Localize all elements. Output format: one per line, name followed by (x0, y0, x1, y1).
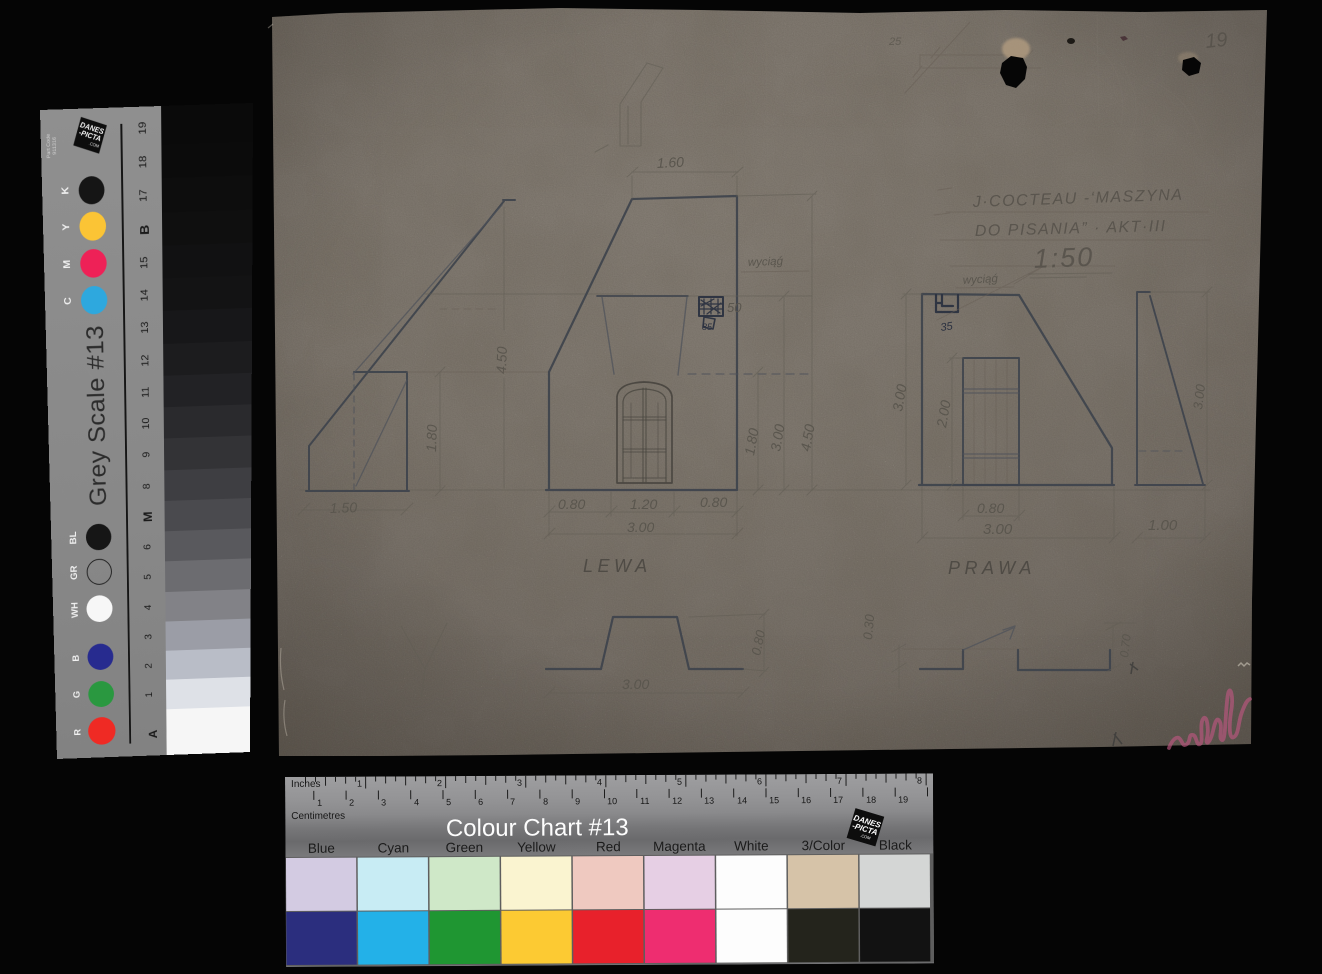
svg-text:3.00: 3.00 (983, 521, 1013, 538)
svg-text:4: 4 (414, 797, 419, 807)
svg-text:3: 3 (381, 797, 386, 807)
svg-text:4: 4 (597, 777, 602, 787)
svg-text:Cyan: Cyan (378, 840, 410, 855)
svg-text:19: 19 (898, 795, 908, 805)
svg-text:Colour Chart #13: Colour Chart #13 (446, 814, 629, 842)
svg-text:10: 10 (607, 796, 617, 806)
svg-text:5: 5 (446, 797, 451, 807)
svg-text:50: 50 (727, 300, 742, 315)
svg-text:wyciąǵ: wyciąǵ (748, 256, 784, 269)
svg-text:7: 7 (510, 797, 515, 807)
svg-text:1.00: 1.00 (1148, 517, 1178, 534)
svg-text:Centimetres: Centimetres (291, 811, 345, 822)
svg-text:White: White (734, 838, 769, 853)
svg-text:Inches: Inches (291, 779, 321, 790)
svg-text:1.50: 1.50 (330, 499, 358, 516)
svg-text:0.80: 0.80 (700, 494, 727, 510)
svg-text:Blue: Blue (308, 841, 335, 856)
svg-text:PRAWA: PRAWA (948, 558, 1036, 578)
svg-text:3.00: 3.00 (622, 676, 649, 692)
svg-text:8: 8 (543, 797, 548, 807)
svg-text:2: 2 (349, 798, 354, 808)
svg-text:Yellow: Yellow (517, 839, 556, 854)
svg-text:7: 7 (837, 776, 842, 786)
svg-text:12: 12 (672, 796, 682, 806)
svg-text:85: 85 (702, 322, 713, 332)
svg-text:11: 11 (640, 796, 649, 806)
svg-text:1.20: 1.20 (630, 496, 657, 512)
svg-text:13: 13 (704, 796, 714, 806)
svg-text:0.80: 0.80 (558, 496, 585, 512)
svg-text:Magenta: Magenta (653, 839, 706, 854)
svg-text:3: 3 (517, 778, 522, 788)
svg-text:1: 1 (317, 798, 322, 808)
svg-text:6: 6 (757, 776, 762, 786)
svg-text:1.80: 1.80 (423, 424, 440, 452)
svg-text:8: 8 (917, 775, 922, 785)
svg-text:2: 2 (437, 778, 442, 788)
svg-text:1: 1 (357, 779, 362, 789)
svg-text:Red: Red (596, 839, 621, 854)
svg-text:4.50: 4.50 (493, 346, 510, 374)
svg-text:0.30: 0.30 (860, 613, 877, 640)
svg-text:25: 25 (888, 36, 902, 48)
svg-text:17: 17 (833, 795, 843, 805)
svg-text:Black: Black (879, 837, 912, 852)
svg-text:5: 5 (677, 777, 682, 787)
svg-text:18: 18 (866, 795, 876, 805)
svg-text:16: 16 (801, 795, 811, 805)
svg-text:9: 9 (575, 796, 580, 806)
svg-text:3.00: 3.00 (1190, 383, 1208, 411)
svg-text:19: 19 (1204, 29, 1228, 53)
svg-text:1.60: 1.60 (656, 154, 684, 171)
svg-text:14: 14 (737, 795, 747, 805)
svg-text:15: 15 (769, 795, 779, 805)
svg-text:1:50: 1:50 (1033, 242, 1095, 274)
svg-text:Green: Green (446, 840, 484, 855)
svg-text:LEWA: LEWA (583, 556, 652, 576)
svg-text:wyciąǵ: wyciąǵ (962, 273, 998, 287)
svg-text:6: 6 (478, 797, 483, 807)
svg-text:0.70: 0.70 (1117, 633, 1134, 658)
svg-text:3.00: 3.00 (627, 519, 654, 535)
svg-text:0.80: 0.80 (977, 500, 1004, 516)
svg-text:3/Color: 3/Color (802, 838, 846, 853)
